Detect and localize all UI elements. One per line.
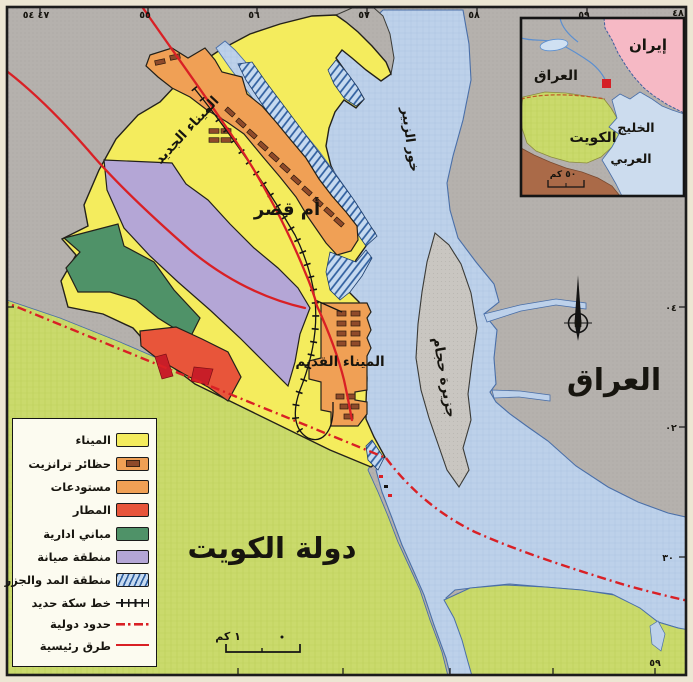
warehouse-swatch — [116, 480, 149, 494]
legend-label: منطقة المد والجزر — [5, 574, 111, 586]
legend-item-admin-buildings: مباني ادارية — [20, 527, 149, 541]
compass-n: N — [574, 319, 582, 330]
coord-top-0: ٤٧ ٥٤ — [23, 10, 50, 21]
railway-symbol-icon — [116, 598, 149, 607]
road-symbol-icon — [116, 644, 149, 647]
inset-label-kuwait: الكويت — [569, 130, 616, 146]
port-swatch — [116, 433, 149, 447]
admin-swatch — [116, 527, 149, 541]
maintenance-swatch — [116, 550, 149, 564]
label-iraq: العراق — [567, 363, 661, 398]
coord-right-0: ٠٤ — [665, 303, 677, 314]
legend: الميناء حظائر ترانزيت مستودعات المطار مب… — [12, 418, 157, 667]
coord-right-1: ٠٢ — [665, 423, 677, 434]
legend-label: مستودعات — [51, 481, 111, 493]
inset-map: إيران العراق الكويت الخليج العربي ٥٠ كم — [521, 18, 684, 196]
legend-item-international-border: حدود دولية — [20, 618, 149, 630]
legend-label: مباني ادارية — [43, 528, 111, 540]
inset-label-iran: إيران — [629, 36, 667, 54]
legend-item-airport: المطار — [20, 503, 149, 517]
hangar-mini-icon — [126, 460, 140, 467]
coord-top-1: ٥٥ — [139, 10, 151, 21]
coord-right-2: ٣٠ — [662, 553, 674, 564]
border-symbol-icon — [116, 623, 149, 626]
legend-item-main-roads: طرق رئيسية — [20, 640, 149, 652]
transit-hangar-swatch — [116, 457, 149, 471]
legend-item-port: الميناء — [20, 433, 149, 447]
umm-qasr-port-map: الميناء الجديد أم قصر الميناء القديم خور… — [0, 0, 693, 682]
legend-label: طرق رئيسية — [40, 640, 111, 652]
inset-label-gulf-2: العربي — [610, 151, 651, 166]
airport-swatch — [116, 503, 149, 517]
tidal-swatch — [116, 573, 149, 587]
scale-label: ١ كم — [215, 630, 241, 643]
legend-item-transit-hangars: حظائر ترانزيت — [20, 457, 149, 471]
inset-label-gulf-1: الخليج — [617, 120, 654, 135]
legend-label: خط سكة حديد — [32, 597, 111, 609]
legend-label: منطقة صيانة — [37, 551, 111, 563]
legend-label: المطار — [73, 504, 111, 516]
legend-label: الميناء — [75, 434, 111, 446]
inset-label-iraq: العراق — [534, 68, 578, 84]
coord-top-2: ٥٦ — [248, 10, 260, 21]
legend-item-warehouses: مستودعات — [20, 480, 149, 494]
coord-bottom-0: ٥٩ — [649, 658, 661, 669]
legend-label: حظائر ترانزيت — [28, 458, 111, 470]
label-kuwait-state: دولة الكويت — [188, 531, 357, 565]
legend-item-maintenance: منطقة صيانة — [20, 550, 149, 564]
coord-top-3: ٥٧ — [358, 10, 370, 21]
inset-scale-label: ٥٠ كم — [550, 170, 576, 180]
legend-label: حدود دولية — [50, 618, 111, 630]
coord-top-4: ٥٨ — [468, 10, 480, 21]
inset-location-marker — [602, 79, 611, 88]
label-old-port: الميناء القديم — [295, 354, 384, 370]
legend-item-railway: خط سكة حديد — [20, 597, 149, 609]
label-umm-qasr: أم قصر — [253, 197, 320, 220]
legend-item-tidal-zone: منطقة المد والجزر — [20, 573, 149, 587]
